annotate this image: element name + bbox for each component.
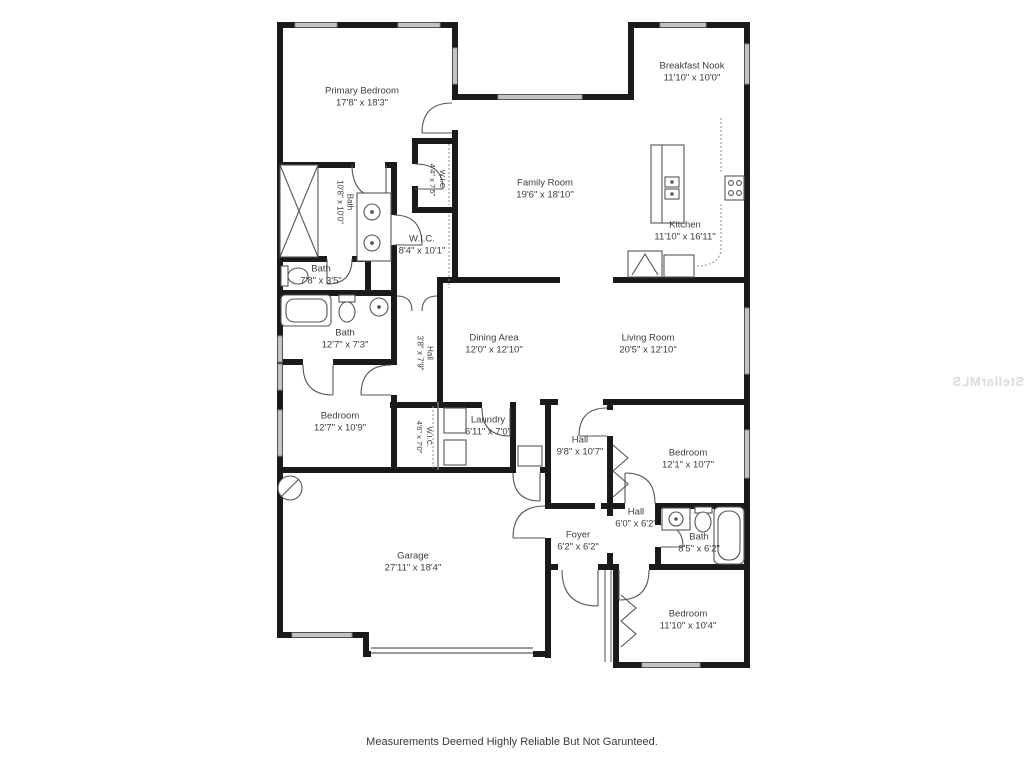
toilet-symbol (339, 295, 355, 322)
window (453, 48, 457, 84)
window (745, 44, 749, 84)
door-swing (361, 365, 391, 395)
window (398, 23, 440, 27)
door-swing (562, 570, 598, 606)
garage-door (371, 648, 533, 653)
floor-plan: Primary Bedroom17'8" x 18'3" Breakfast N… (0, 0, 1024, 768)
window (660, 23, 706, 27)
room-label-hall-center: Hall3'8" x 7'9" (414, 336, 435, 371)
disclaimer-text: Measurements Deemed Highly Reliable But … (0, 736, 1024, 748)
room-label-family-room: Family Room19'6" x 18'10" (516, 178, 573, 203)
window (745, 430, 749, 478)
floor-plan-drawing (0, 0, 1024, 768)
room-label-primary-bedroom: Primary Bedroom17'8" x 18'3" (325, 86, 399, 111)
sink-symbol (662, 508, 690, 530)
closet-doors-symbol (613, 445, 628, 497)
water-heater-symbol (278, 476, 302, 500)
room-label-breakfast-nook: Breakfast Nook11'10" x 10'0" (660, 61, 725, 86)
room-label-bath-4: Bath8'5" x 6'2" (678, 532, 720, 557)
door-swing (579, 408, 607, 436)
room-label-dining-area: Dining Area12'0" x 12'10" (465, 333, 522, 358)
window (295, 23, 337, 27)
room-label-bedroom-3: Bedroom12'1" x 10'7" (662, 448, 714, 473)
window (745, 308, 749, 374)
window (278, 336, 282, 362)
shower-symbol (280, 165, 318, 257)
door-swing (619, 570, 649, 600)
room-label-living-room: Living Room20'5" x 12'10" (619, 333, 676, 358)
room-label-wic-2: W.I.C.8'4" x 10'1" (399, 234, 446, 259)
room-label-wic-1: W.I.C.4'4" x 7'5" (427, 164, 447, 197)
bench-symbol (518, 446, 542, 466)
room-label-primary-bath: Bath10'8" x 10'0" (334, 180, 355, 224)
room-label-hall-rear: Hall9'8" x 10'7" (557, 435, 604, 460)
room-label-bedroom-4: Bedroom11'10" x 10'4" (660, 609, 717, 634)
door-swing (303, 365, 333, 395)
washer-symbol (444, 408, 466, 433)
arch-opening (397, 296, 437, 311)
bathtub-symbol (281, 295, 331, 326)
dryer-symbol (444, 440, 466, 465)
room-label-hall-front: Hall6'0" x 6'2" (615, 507, 657, 532)
door-swing (513, 506, 545, 538)
window (278, 364, 282, 390)
toilet-symbol (695, 507, 712, 532)
room-label-wic-3: W.I.C.4'6" x 7'0" (414, 421, 434, 454)
window (642, 663, 700, 667)
window (292, 633, 352, 637)
door-swing (513, 473, 540, 501)
room-label-bath-3: Bath12'7" x 7'3" (322, 328, 369, 353)
watermark: StellarMLS (948, 374, 1024, 389)
room-label-kitchen: Kitchen11'10" x 16'11" (654, 220, 715, 245)
room-label-garage: Garage27'11" x 18'4" (385, 551, 442, 576)
vanity-sink-symbol (357, 193, 391, 261)
window (278, 410, 282, 456)
door-swing (422, 103, 452, 133)
stove-symbol (725, 176, 744, 200)
counter-symbol (664, 255, 694, 277)
window (498, 95, 582, 99)
porch-outline (605, 570, 611, 662)
pantry-symbol (628, 251, 662, 277)
sink-symbol (370, 298, 388, 316)
room-label-bath-2: Bath7'8" x 3'5" (300, 264, 342, 289)
room-label-laundry: Laundry6'11" x 7'0" (465, 415, 511, 440)
kitchen-island-symbol (651, 145, 684, 223)
door-swing (625, 473, 655, 503)
closet-doors-symbol (621, 595, 636, 647)
room-label-bedroom-2: Bedroom12'7" x 10'9" (314, 411, 366, 436)
room-label-foyer: Foyer6'2" x 6'2" (557, 530, 599, 555)
